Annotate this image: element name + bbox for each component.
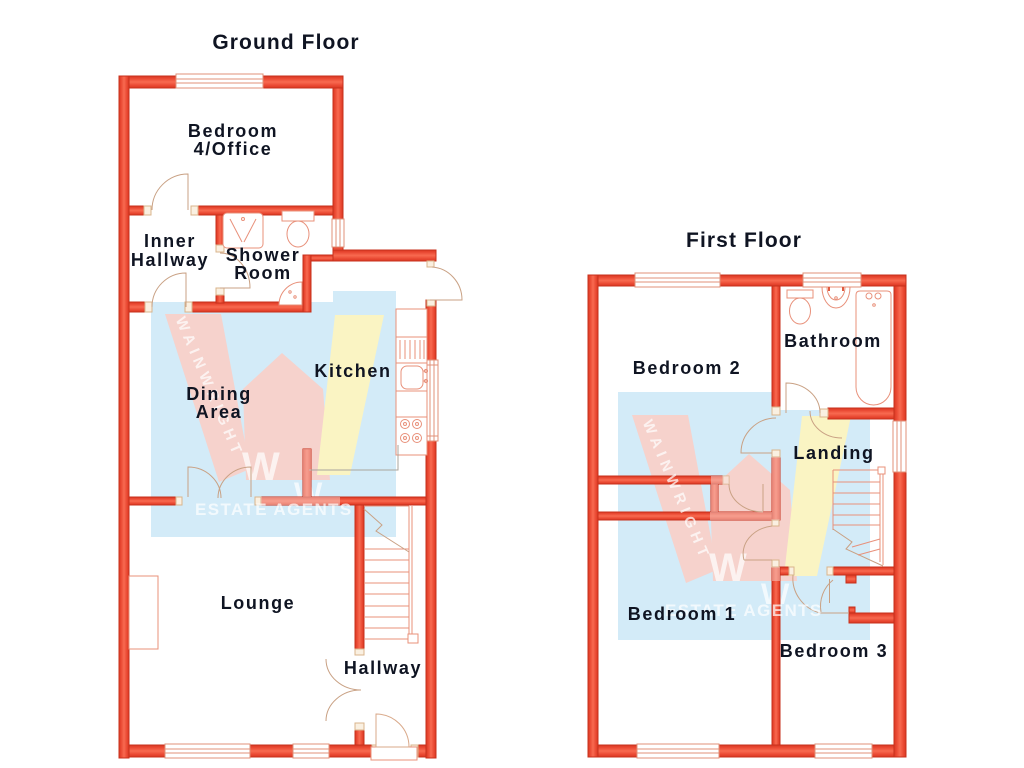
svg-text:Bedroom 1: Bedroom 1 [628,604,736,624]
svg-text:Inner: Inner [144,231,196,251]
svg-text:Bathroom: Bathroom [784,331,882,351]
svg-text:Bedroom 2: Bedroom 2 [633,358,741,378]
svg-text:Hallway: Hallway [344,658,422,678]
svg-text:Bedroom: Bedroom [188,121,278,141]
svg-text:Dining: Dining [186,384,252,404]
svg-text:Shower: Shower [226,245,301,265]
svg-text:Bedroom 3: Bedroom 3 [780,641,888,661]
svg-text:Room: Room [234,263,291,283]
svg-text:Area: Area [196,402,242,422]
svg-text:ESTATE AGENTS: ESTATE AGENTS [195,500,353,519]
svg-text:Lounge: Lounge [221,593,296,613]
svg-text:Kitchen: Kitchen [314,361,391,381]
svg-text:First Floor: First Floor [686,229,802,252]
svg-text:4/Office: 4/Office [194,139,273,159]
svg-text:W: W [709,546,747,590]
svg-text:Hallway: Hallway [131,250,209,270]
svg-text:Ground Floor: Ground Floor [212,31,359,54]
svg-text:Landing: Landing [793,443,874,463]
